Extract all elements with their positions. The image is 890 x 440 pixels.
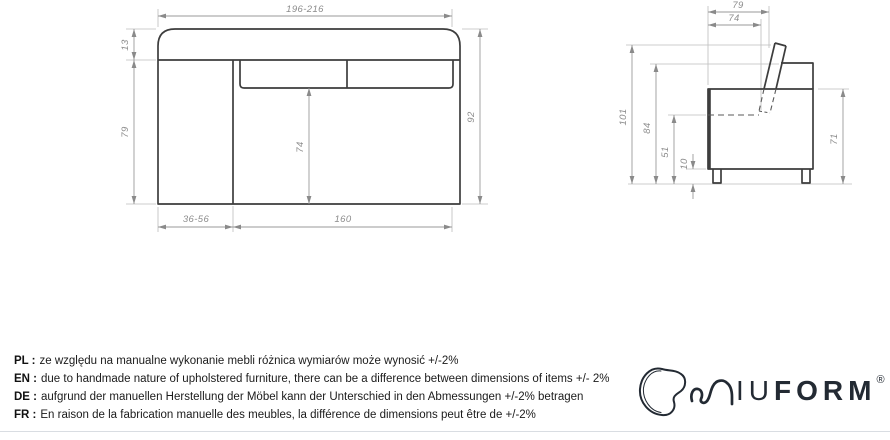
dim-front-seat-front-height: 74 — [295, 141, 306, 152]
logo-text-form: FORM — [774, 361, 876, 421]
registered-trademark-icon: ® — [876, 375, 884, 386]
bean-icon — [640, 369, 685, 416]
front-view-extension-lines — [126, 9, 488, 232]
technical-drawing: 196-216 13 79 92 74 36-56 160 — [0, 0, 890, 345]
side-view-hidden-lines — [708, 89, 776, 115]
dim-side-seat-level-height: 51 — [660, 146, 671, 157]
dim-side-leg-height: 10 — [679, 158, 690, 170]
sofa-side-view: 79 74 101 84 51 10 71 — [618, 0, 852, 199]
logo-m-glyph — [691, 381, 732, 404]
disclaimer-line-pl: PL :ze względu na manualne wykonanie meb… — [14, 352, 634, 370]
disclaimer-text-pl: ze względu na manualne wykonanie mebli r… — [40, 355, 459, 367]
dim-side-arm-height: 71 — [829, 133, 840, 144]
disclaimer-text-en: due to handmade nature of upholstered fu… — [41, 373, 609, 385]
dim-side-total-height: 101 — [618, 108, 629, 125]
miuform-logo: IUFORM® — [636, 360, 886, 422]
dim-side-backrest-height: 84 — [642, 122, 653, 133]
dim-front-armrest-width: 36-56 — [183, 214, 210, 225]
disclaimer-lang-fr: FR : — [14, 409, 36, 421]
sofa-front-view: 196-216 13 79 92 74 36-56 160 — [120, 4, 488, 232]
dim-front-side-height: 79 — [120, 126, 131, 138]
disclaimer-text-de: aufgrund der manuellen Herstellung der M… — [41, 391, 583, 403]
side-view-dimension-lines — [632, 12, 843, 199]
disclaimer-line-fr: FR :En raison de la fabrication manuelle… — [14, 406, 634, 424]
disclaimer-lang-de: DE : — [14, 391, 37, 403]
dim-side-seat-depth: 74 — [728, 13, 739, 24]
disclaimer-text-fr: En raison de la fabrication manuelle des… — [40, 409, 536, 421]
logo-text-iu: IU — [736, 361, 774, 421]
disclaimer-line-de: DE :aufgrund der manuellen Herstellung d… — [14, 388, 634, 406]
dim-front-width: 196-216 — [286, 4, 324, 15]
disclaimer-line-en: EN :due to handmade nature of upholstere… — [14, 370, 634, 388]
dim-side-depth: 79 — [732, 0, 744, 11]
disclaimer-block: PL :ze względu na manualne wykonanie meb… — [14, 352, 634, 424]
dim-front-seat-width: 160 — [334, 214, 351, 225]
disclaimer-lang-en: EN : — [14, 373, 37, 385]
disclaimer-lang-pl: PL : — [14, 355, 36, 367]
miuform-logo-mark — [636, 361, 734, 421]
logo-wordmark: IUFORM® — [736, 361, 885, 421]
front-view-dimension-lines — [134, 16, 480, 227]
bottom-divider — [0, 431, 890, 432]
dim-front-total-height: 92 — [466, 111, 477, 123]
dim-front-backrest-top: 13 — [120, 39, 131, 51]
